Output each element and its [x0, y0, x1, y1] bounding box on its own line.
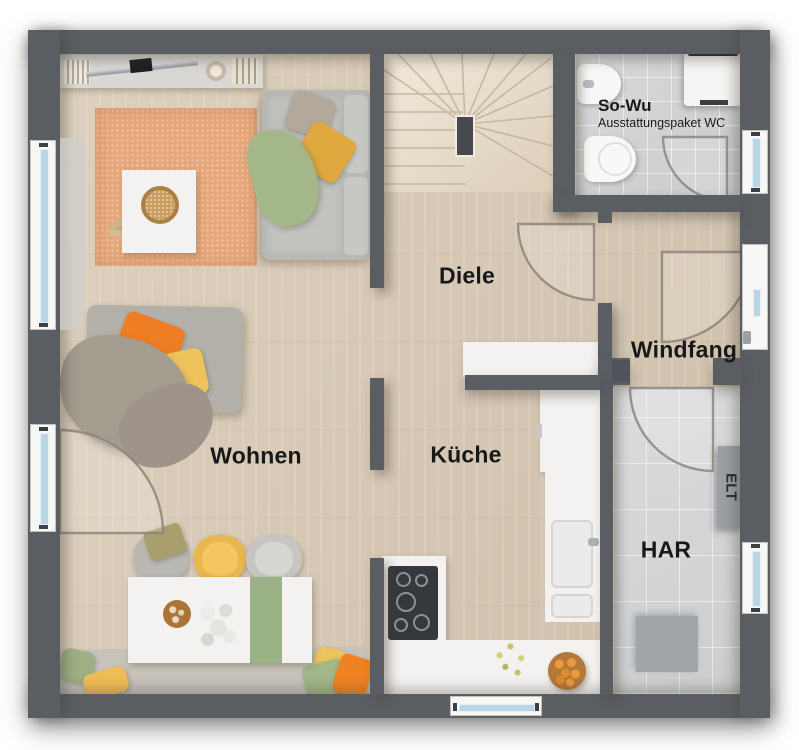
- terrace-door-arc: [60, 430, 163, 533]
- window-living-1: [30, 140, 56, 330]
- window-sill: [60, 138, 84, 330]
- wall-kueche-north: [465, 375, 600, 390]
- entrance-door-arc: [662, 252, 752, 342]
- wc-label-subtitle: Ausstattungspaket WC: [598, 116, 725, 130]
- room-label-har: HAR: [641, 537, 691, 564]
- floor-plan: Wohnen Diele Küche Windfang HAR ELT So-W…: [0, 0, 799, 750]
- wall-diele-windfang: [598, 303, 612, 358]
- room-label-wohnen: Wohnen: [210, 443, 301, 470]
- label-elt: ELT: [723, 473, 740, 501]
- wall-stairs-wc: [553, 54, 575, 212]
- wall-niche: [612, 360, 630, 382]
- wall-diele-windfang-stub: [598, 212, 612, 223]
- entrance-door: [742, 244, 768, 350]
- room-label-windfang: Windfang: [631, 337, 737, 364]
- window-wc: [742, 130, 768, 194]
- room-label-kueche: Küche: [430, 442, 501, 469]
- door-swings: [0, 0, 799, 750]
- window-har: [742, 542, 768, 614]
- wall-top: [28, 30, 770, 54]
- wall-wc-south: [553, 195, 742, 212]
- wc-door-arc: [663, 137, 727, 201]
- wc-label-title: So-Wu: [598, 96, 652, 116]
- wall-bottom: [28, 694, 770, 718]
- wall-left: [28, 30, 60, 718]
- har-door-arc: [630, 388, 713, 471]
- room-label-diele: Diele: [439, 263, 495, 290]
- terrace-door: [30, 424, 56, 532]
- diele-windfang-door-arc: [518, 224, 594, 300]
- wall-kueche-har: [600, 385, 613, 694]
- wall-wohnen-kueche-upper: [370, 378, 384, 470]
- wall-wohnen-kueche-lower: [370, 558, 384, 694]
- window-kitchen: [450, 696, 542, 716]
- wall-wohnen-stairs: [370, 54, 384, 288]
- door-handle: [743, 331, 751, 344]
